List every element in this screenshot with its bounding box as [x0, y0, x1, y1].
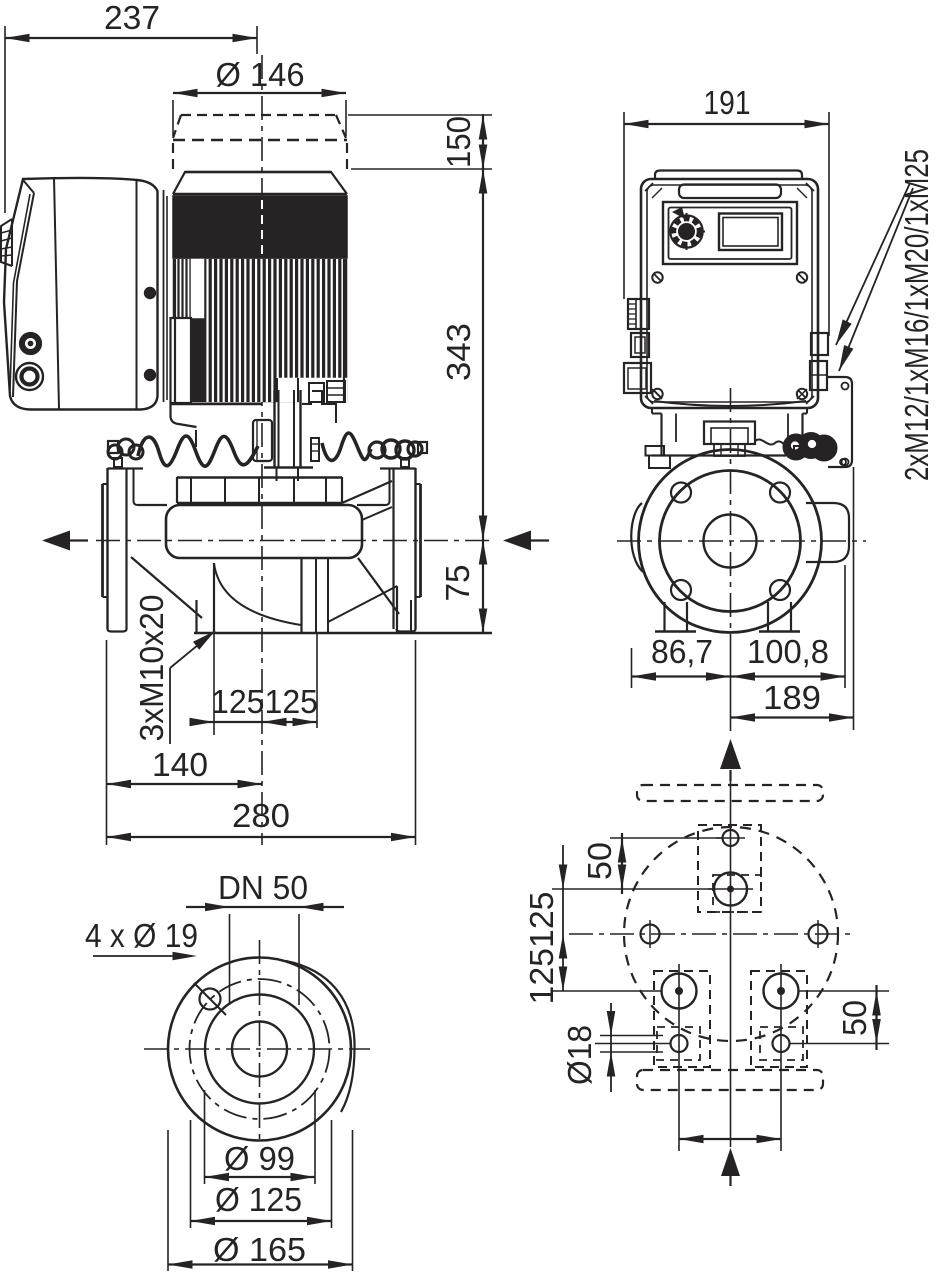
svg-text:140: 140 [152, 746, 208, 783]
svg-text:Ø 125: Ø 125 [215, 1181, 302, 1218]
svg-text:150: 150 [440, 116, 477, 168]
svg-text:Ø 165: Ø 165 [213, 1231, 306, 1268]
svg-text:343: 343 [440, 323, 477, 381]
svg-text:237: 237 [104, 0, 160, 36]
svg-text:50: 50 [581, 842, 618, 880]
svg-text:3xM10x20: 3xM10x20 [133, 595, 170, 742]
svg-text:Ø18: Ø18 [561, 1025, 598, 1085]
svg-text:Ø 146: Ø 146 [216, 56, 305, 93]
svg-text:DN 50: DN 50 [218, 869, 308, 906]
svg-text:75: 75 [439, 565, 476, 602]
svg-text:189: 189 [763, 679, 821, 716]
svg-text:125125: 125125 [211, 683, 318, 720]
svg-text:4 x Ø 19: 4 x Ø 19 [85, 917, 198, 954]
svg-text:100,8: 100,8 [747, 633, 829, 670]
svg-text:86,7: 86,7 [651, 633, 713, 670]
svg-text:Ø 99: Ø 99 [224, 1140, 295, 1177]
svg-text:125125: 125125 [523, 892, 560, 1005]
svg-text:280: 280 [232, 797, 290, 834]
svg-text:191: 191 [704, 84, 751, 121]
svg-text:50: 50 [836, 1000, 873, 1036]
